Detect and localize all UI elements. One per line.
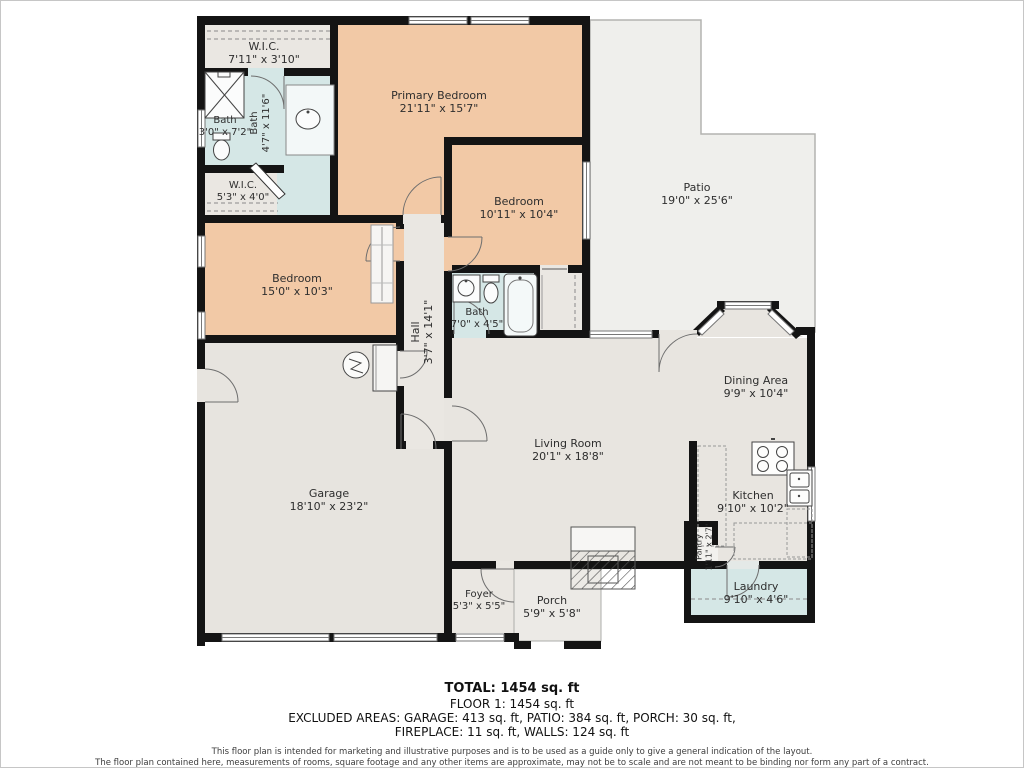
floor-plan-page: W.I.C. 7'11" x 3'10" Primary Bedroom 21'… [0,0,1024,768]
disclaimer-line-2: The floor plan contained here, measureme… [1,758,1023,768]
water-heater [343,352,369,378]
summary-footer: TOTAL: 1454 sq. ft FLOOR 1: 1454 sq. ft … [1,682,1023,768]
furnace-closet [373,345,397,391]
total-area-text: TOTAL: 1454 sq. ft [1,682,1023,697]
patio-area [590,20,815,332]
toilet [213,133,230,160]
excluded-areas-text: EXCLUDED AREAS: GARAGE: 413 sq. ft, PATI… [1,711,1023,725]
shower [205,72,244,118]
bedroom-closet [371,225,393,303]
floor-plan-canvas [1,1,1024,768]
floor-area-text: FLOOR 1: 1454 sq. ft [1,697,1023,711]
fireplace [571,527,635,589]
excluded-areas-text-2: FIREPLACE: 11 sq. ft, WALLS: 124 sq. ft [1,725,1023,739]
vanity-sink [286,85,334,155]
disclaimer-line-1: This floor plan is intended for marketin… [1,747,1023,757]
